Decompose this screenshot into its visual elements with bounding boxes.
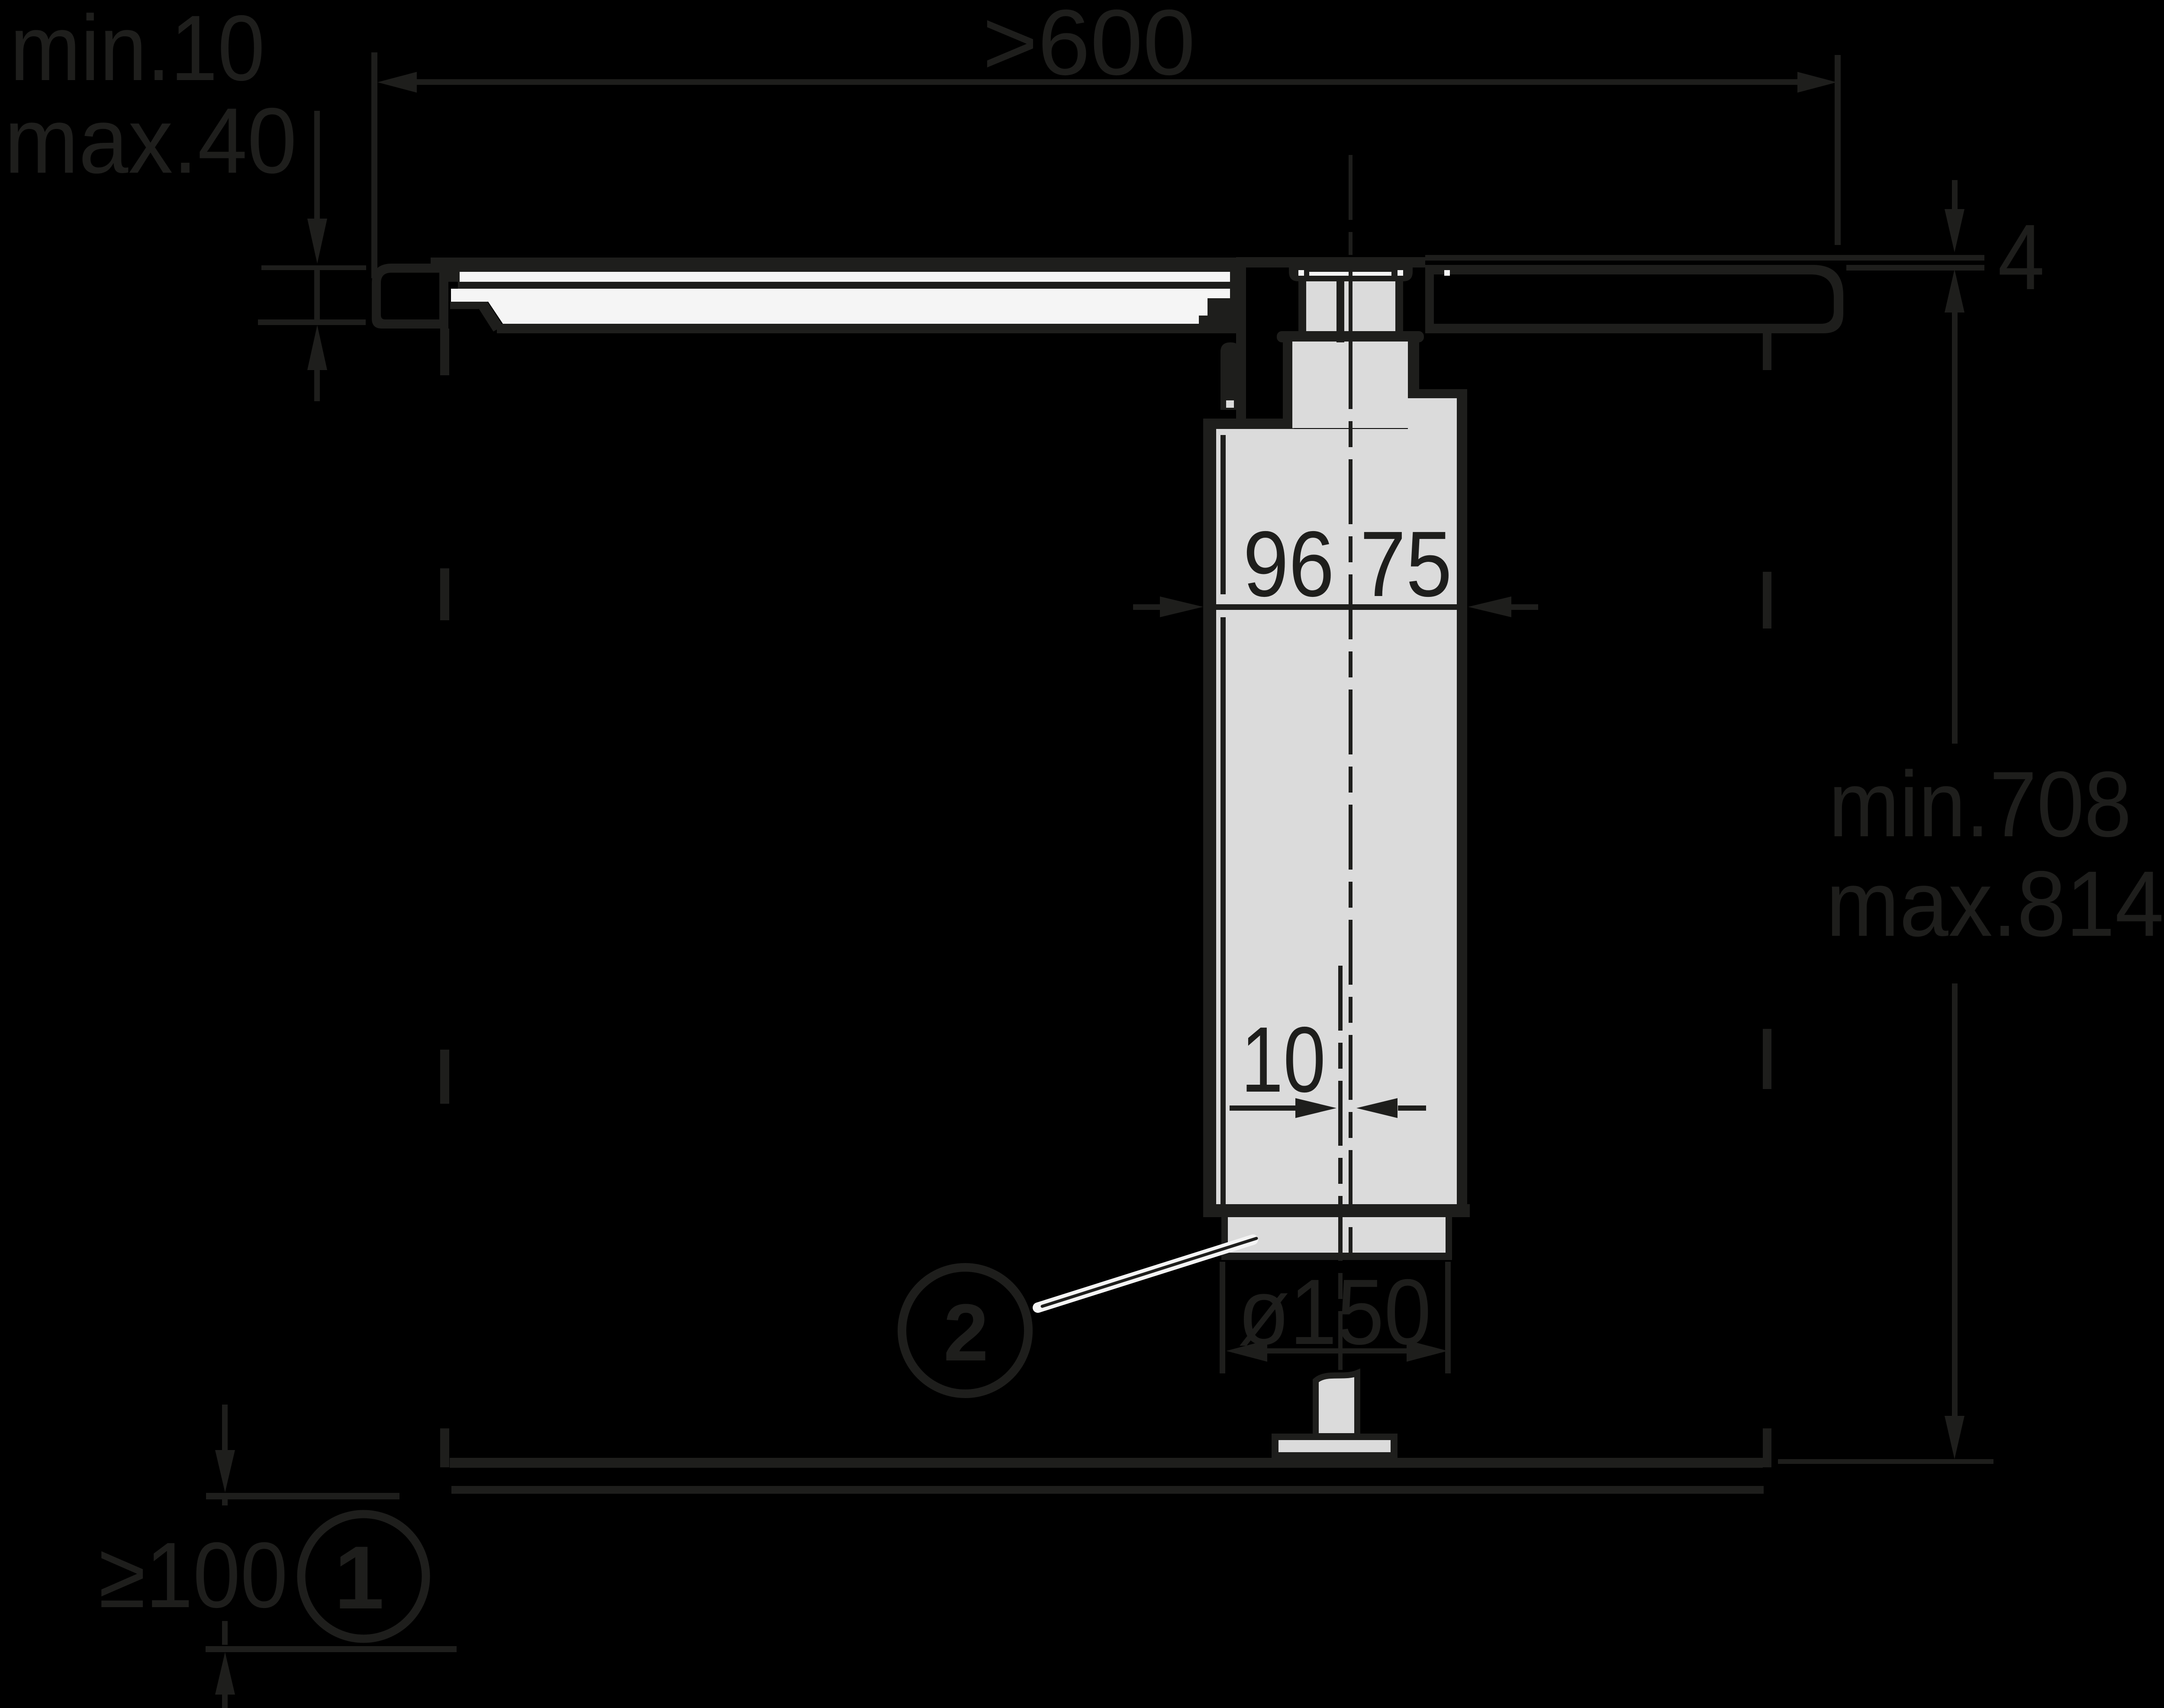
svg-text:10: 10	[1241, 1007, 1326, 1112]
svg-text:≥100: ≥100	[99, 1523, 288, 1627]
svg-text:ø150: ø150	[1238, 1260, 1431, 1364]
svg-text:4: 4	[1998, 205, 2045, 309]
svg-text:max.814: max.814	[1826, 851, 2164, 956]
svg-text:min.708: min.708	[1829, 752, 2132, 856]
svg-text:max.40: max.40	[4, 88, 297, 193]
svg-text:2: 2	[944, 1287, 989, 1378]
svg-text:1: 1	[334, 1528, 384, 1627]
svg-text:>600: >600	[982, 0, 1195, 94]
svg-text:min.10: min.10	[10, 0, 265, 100]
svg-text:75: 75	[1360, 512, 1452, 616]
svg-text:96: 96	[1243, 512, 1334, 616]
